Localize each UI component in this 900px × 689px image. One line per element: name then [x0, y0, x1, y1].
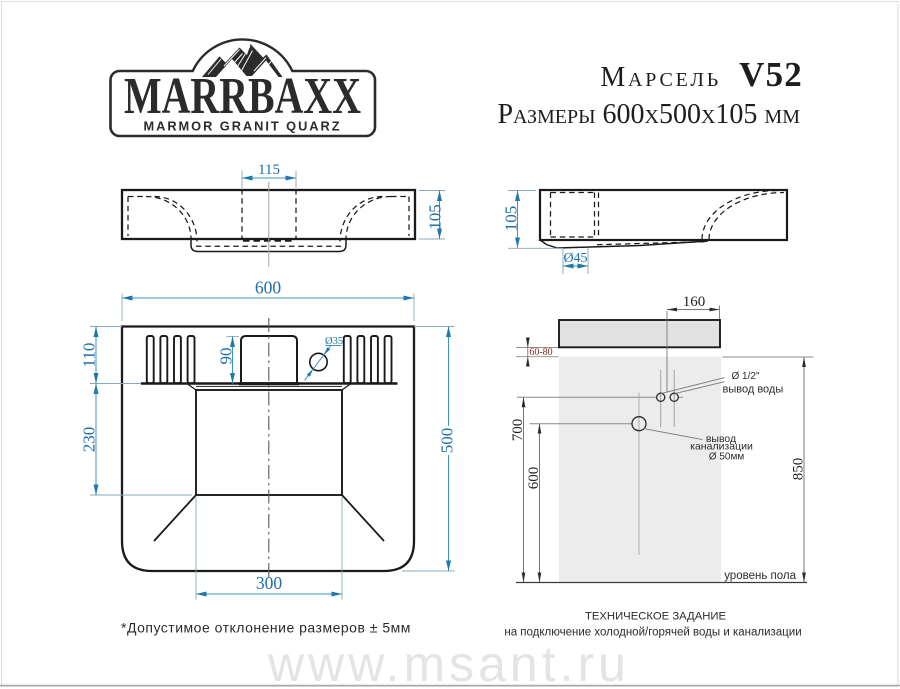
- svg-text:90: 90: [217, 348, 236, 365]
- svg-text:Ø 1/2": Ø 1/2": [732, 371, 760, 382]
- svg-text:Ø45: Ø45: [563, 251, 587, 266]
- svg-text:115: 115: [258, 162, 280, 178]
- svg-text:MARMOR GRANIT QUARZ: MARMOR GRANIT QUARZ: [144, 119, 342, 134]
- svg-text:MARRBAXX: MARRBAXX: [124, 68, 361, 125]
- svg-text:230: 230: [80, 427, 99, 453]
- svg-text:ТЕХНИЧЕСКОЕ ЗАДАНИЕ: ТЕХНИЧЕСКОЕ ЗАДАНИЕ: [585, 611, 727, 623]
- svg-text:700: 700: [510, 419, 526, 442]
- svg-text:на подключение холодной/горяче: на подключение холодной/горячей воды и к…: [504, 627, 801, 639]
- svg-text:60-80: 60-80: [529, 347, 552, 358]
- svg-text:500: 500: [438, 428, 457, 454]
- svg-text:160: 160: [683, 294, 706, 310]
- svg-text:Ø35: Ø35: [325, 336, 343, 347]
- svg-text:110: 110: [80, 343, 99, 368]
- svg-text:105: 105: [426, 204, 445, 230]
- svg-text:300: 300: [256, 573, 283, 593]
- svg-text:V52: V52: [739, 55, 803, 94]
- svg-text:Марсель: Марсель: [600, 62, 721, 93]
- svg-text:уровень пола: уровень пола: [724, 570, 796, 582]
- svg-text:600: 600: [255, 278, 282, 298]
- svg-text:Размеры 600х500х105 мм: Размеры 600х500х105 мм: [497, 99, 800, 130]
- svg-text:www.msant.ru: www.msant.ru: [267, 636, 630, 689]
- svg-text:850: 850: [791, 458, 807, 481]
- svg-text:Ø 50мм: Ø 50мм: [709, 452, 745, 463]
- svg-text:600: 600: [526, 467, 542, 490]
- svg-text:вывод воды: вывод воды: [723, 384, 784, 396]
- svg-text:*Допустимое отклонение размеро: *Допустимое отклонение размеров ± 5мм: [121, 620, 411, 636]
- svg-text:105: 105: [502, 206, 521, 232]
